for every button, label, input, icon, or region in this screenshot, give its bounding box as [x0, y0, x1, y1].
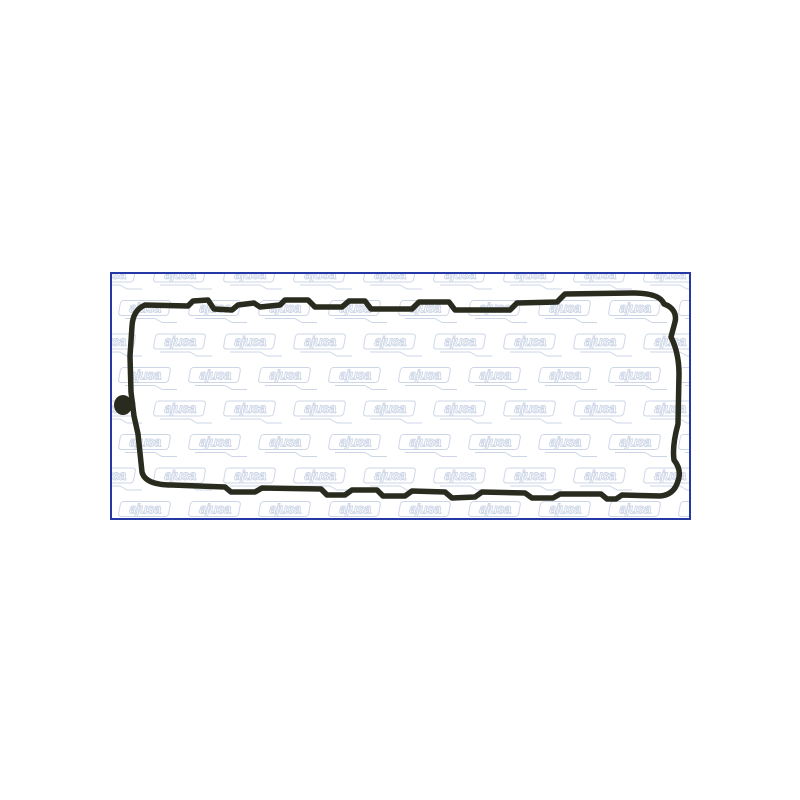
watermark-logo	[118, 435, 177, 457]
watermark-logo	[328, 435, 387, 457]
watermark-logo	[678, 502, 689, 519]
watermark-logo	[223, 274, 282, 289]
watermark-logo	[118, 502, 177, 519]
watermark-logo	[112, 468, 142, 490]
watermark-logo	[608, 368, 667, 390]
watermark-logo	[363, 274, 422, 289]
watermark-logo	[503, 468, 562, 490]
watermark-logo	[573, 334, 632, 356]
product-image-frame: ajusa	[110, 272, 691, 520]
watermark-logo	[503, 334, 562, 356]
watermark-logo	[118, 368, 177, 390]
watermark-logo	[188, 368, 247, 390]
watermark-logo	[503, 274, 562, 289]
watermark-logo	[398, 435, 457, 457]
watermark-logo	[538, 435, 597, 457]
watermark-logo	[258, 502, 317, 519]
watermark-logo	[538, 502, 597, 519]
watermark-logo	[503, 401, 562, 423]
watermark-logo	[608, 301, 667, 323]
watermark-logo	[363, 468, 422, 490]
watermark-logo	[433, 468, 492, 490]
watermark-logo	[643, 334, 689, 356]
watermark-logo	[293, 401, 352, 423]
watermark-logo	[188, 502, 247, 519]
watermark-logo	[223, 334, 282, 356]
watermark-logo	[258, 368, 317, 390]
watermark-logo	[398, 368, 457, 390]
watermark-logo	[328, 502, 387, 519]
watermark-logo	[188, 435, 247, 457]
watermark-logo	[643, 468, 689, 490]
page-background: ajusa	[0, 0, 800, 800]
watermark-logo	[468, 502, 527, 519]
watermark-logo	[258, 435, 317, 457]
watermark-logo	[608, 502, 667, 519]
watermark-logo	[433, 334, 492, 356]
gasket-product-svg: ajusa	[112, 274, 689, 518]
watermark-logo	[538, 368, 597, 390]
watermark-logo	[643, 274, 689, 289]
watermark-logo	[573, 468, 632, 490]
watermark-logo	[363, 401, 422, 423]
watermark-logo	[153, 334, 212, 356]
watermark-logo	[678, 301, 689, 323]
watermark-logo	[573, 401, 632, 423]
watermark-logo	[398, 502, 457, 519]
watermark-logo	[112, 334, 142, 356]
watermark-logo	[433, 274, 492, 289]
watermark-logo	[608, 435, 667, 457]
watermark-logo	[468, 368, 527, 390]
watermark-logo	[112, 274, 142, 289]
watermark-logo	[643, 401, 689, 423]
watermark-logo	[153, 274, 212, 289]
watermark-logo	[328, 368, 387, 390]
watermark-logo	[573, 274, 632, 289]
watermark-logo	[468, 435, 527, 457]
watermark-logo	[293, 274, 352, 289]
watermark-logo	[363, 334, 422, 356]
watermark-logo	[223, 401, 282, 423]
watermark-logo	[678, 435, 689, 457]
watermark-logo	[293, 334, 352, 356]
watermark-logo	[433, 401, 492, 423]
watermark-logo	[153, 401, 212, 423]
